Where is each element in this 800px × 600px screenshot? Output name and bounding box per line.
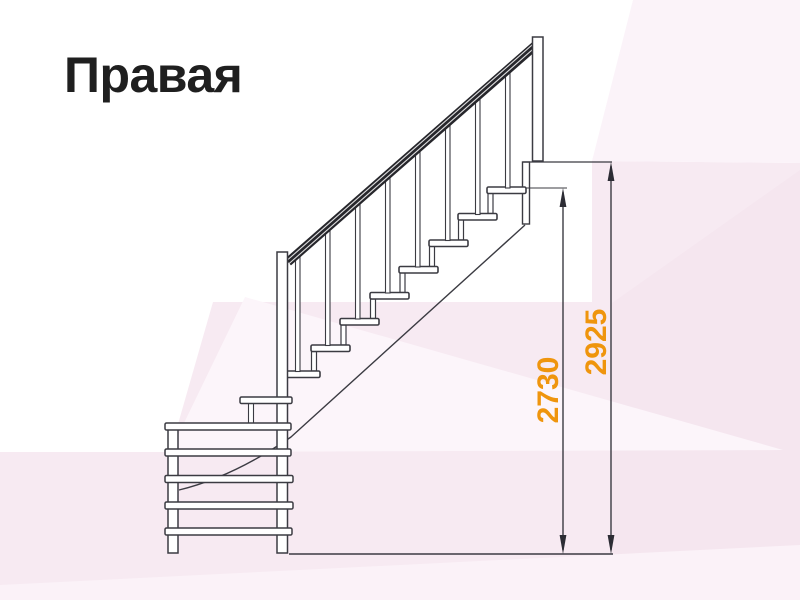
baluster	[416, 146, 421, 267]
arrow-up-icon	[560, 188, 567, 207]
staircase-drawing-page: Правая 2730 2925	[0, 0, 800, 600]
winder-tread	[240, 397, 292, 404]
winder-tread	[165, 476, 293, 483]
handrail-highlight	[288, 47, 536, 265]
tread-support	[341, 325, 346, 345]
winder-tread	[165, 449, 291, 456]
baluster	[326, 225, 331, 346]
dimension-label-2925: 2925	[580, 309, 613, 376]
top-newel-post	[533, 37, 544, 161]
baluster	[446, 120, 451, 241]
baluster	[386, 173, 391, 293]
baluster	[356, 199, 361, 319]
handrail	[288, 42, 537, 265]
baluster	[506, 68, 511, 188]
staircase-diagram: 2730 2925	[0, 0, 800, 600]
winder-tread-support	[249, 402, 254, 424]
handrail-highlight	[288, 42, 536, 260]
winder-tread	[165, 528, 292, 535]
tread-support	[371, 299, 376, 319]
tread-support	[312, 352, 317, 372]
background-facets	[0, 0, 800, 600]
handrail-band	[288, 44, 537, 262]
baluster	[296, 252, 301, 372]
baluster	[476, 94, 481, 215]
winder-tread	[165, 423, 291, 430]
tread-support	[400, 273, 405, 293]
tread-support	[488, 193, 493, 214]
tread-support	[430, 246, 435, 267]
tread-support	[459, 220, 464, 241]
dimension-label-2730: 2730	[532, 357, 565, 424]
background-facet	[592, 0, 800, 163]
winder-tread	[165, 502, 293, 509]
